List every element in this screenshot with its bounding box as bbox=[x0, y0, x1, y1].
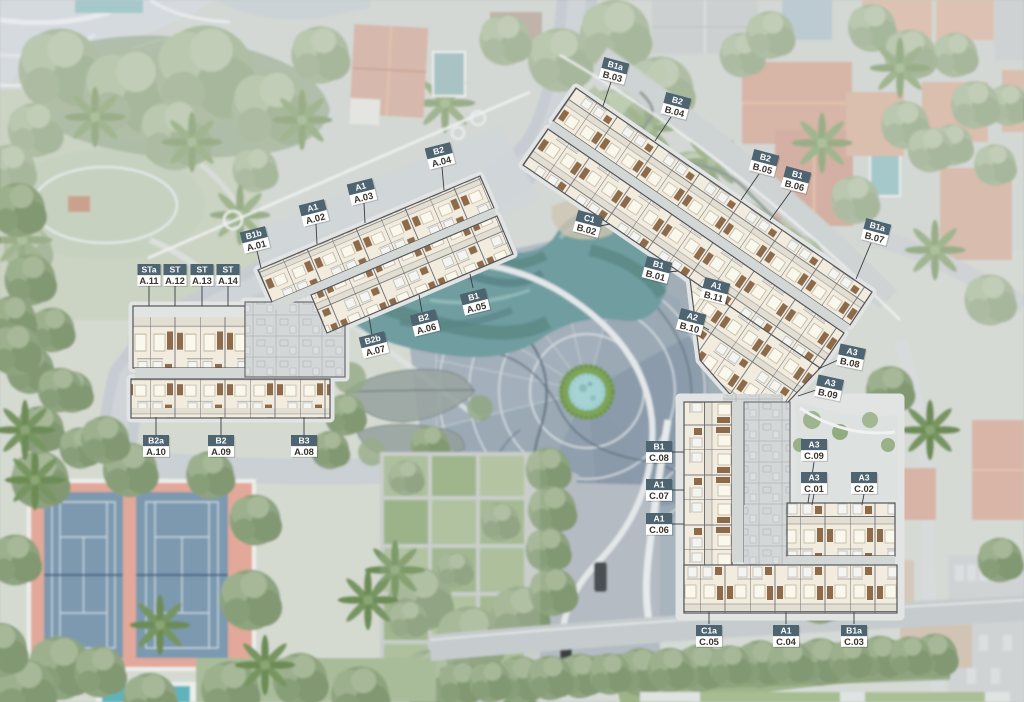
svg-text:STa: STa bbox=[141, 264, 156, 274]
svg-text:C.07: C.07 bbox=[649, 490, 669, 501]
svg-text:A.09: A.09 bbox=[211, 446, 231, 457]
svg-text:A1: A1 bbox=[654, 513, 665, 523]
svg-text:A.13: A.13 bbox=[192, 275, 212, 286]
svg-text:ST: ST bbox=[197, 264, 209, 274]
svg-text:A.14: A.14 bbox=[218, 275, 239, 286]
svg-text:A3: A3 bbox=[809, 439, 820, 449]
svg-text:C.09: C.09 bbox=[804, 450, 824, 461]
svg-text:C.03: C.03 bbox=[844, 636, 864, 647]
svg-text:C.05: C.05 bbox=[699, 636, 719, 647]
svg-text:A.08: A.08 bbox=[294, 446, 314, 457]
svg-text:C1a: C1a bbox=[701, 625, 717, 635]
svg-text:C.02: C.02 bbox=[854, 483, 874, 494]
svg-text:A1: A1 bbox=[654, 479, 665, 489]
svg-text:A3: A3 bbox=[809, 472, 820, 482]
svg-text:B2: B2 bbox=[216, 435, 227, 445]
svg-text:C.01: C.01 bbox=[804, 483, 824, 494]
svg-text:ST: ST bbox=[170, 264, 182, 274]
svg-text:A3: A3 bbox=[859, 472, 870, 482]
svg-text:C.04: C.04 bbox=[776, 636, 797, 647]
svg-text:C.06: C.06 bbox=[649, 524, 669, 535]
svg-text:B1: B1 bbox=[654, 441, 665, 451]
svg-text:B2a: B2a bbox=[148, 435, 164, 445]
svg-text:B3: B3 bbox=[299, 435, 310, 445]
svg-text:ST: ST bbox=[223, 264, 235, 274]
svg-text:B1a: B1a bbox=[846, 625, 862, 635]
svg-text:C.08: C.08 bbox=[649, 452, 669, 463]
svg-text:A.11: A.11 bbox=[139, 275, 158, 286]
svg-text:A.10: A.10 bbox=[146, 446, 166, 457]
svg-text:A1: A1 bbox=[781, 625, 792, 635]
svg-text:A.12: A.12 bbox=[165, 275, 185, 286]
